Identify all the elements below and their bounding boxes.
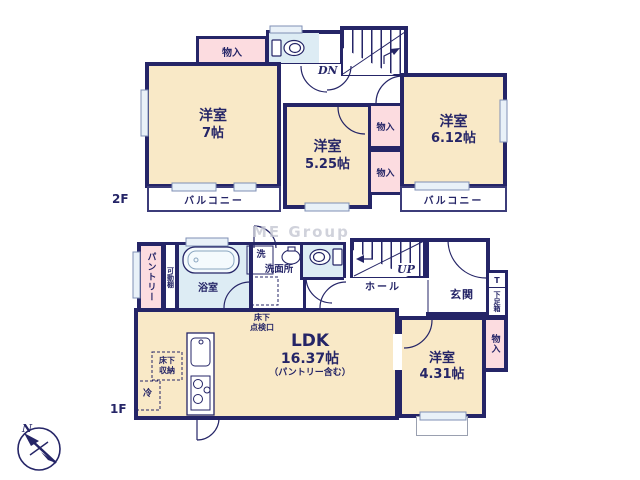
closet-2f-top-label: 物入 [222, 44, 242, 59]
hall-1f-label: ホール [352, 282, 414, 294]
bathroom-label: 浴室 [198, 283, 218, 295]
balcony-west: バルコニー [147, 186, 281, 212]
room-2f-east: 洋室 6.12帖 [400, 73, 507, 188]
shoe-box-t-label: T [494, 276, 499, 285]
room-2f-east-size: 6.12帖 [431, 131, 476, 147]
ldk-note: （パントリー含む） [245, 368, 375, 379]
ldk-label: LDK 16.37帖 （パントリー含む） [245, 331, 375, 379]
closet-1f-east-label: 物入 [489, 334, 502, 354]
room-2f-west: 洋室 7帖 [145, 62, 281, 188]
ldk-name: LDK [245, 331, 375, 351]
movable-shelf-label: 可動棚 [166, 267, 176, 288]
closet-2f-upper: 物入 [368, 103, 403, 149]
room-2f-west-size: 7帖 [202, 126, 224, 142]
pantry-label: パントリー [145, 252, 158, 302]
underfloor-hatch-label: 床下 点検口 [240, 313, 284, 332]
room-2f-center-name: 洋室 [314, 139, 342, 157]
room-2f-west-name: 洋室 [199, 108, 227, 126]
shoe-box-label: 下足箱 [492, 291, 502, 312]
compass-north-label: N [22, 422, 32, 435]
entrance-label: 玄関 [450, 288, 474, 301]
washroom-label: 洗面所 [254, 264, 304, 275]
underfloor-storage-label: 床下 収納 [152, 356, 182, 375]
bathroom [176, 242, 252, 312]
balcony-west-label: バルコニー [184, 192, 244, 207]
toilet-2f [266, 30, 322, 66]
floor-1-label: 1F [110, 402, 127, 416]
room-2f-center: 洋室 5.25帖 [283, 103, 372, 209]
closet-2f-upper-label: 物入 [376, 120, 394, 133]
balcony-east-label: バルコニー [424, 192, 484, 207]
floor-2-label: 2F [112, 192, 129, 206]
watermark: ME Group [252, 223, 350, 241]
laundry-label: 洗 [249, 250, 273, 261]
entrance-porch [426, 238, 490, 280]
closet-2f-lower: 物入 [368, 149, 403, 195]
room-2f-east-name: 洋室 [440, 114, 468, 132]
room-2f-center-size: 5.25帖 [305, 157, 350, 173]
ldk-size: 16.37帖 [245, 351, 375, 368]
closet-2f-lower-label: 物入 [376, 166, 394, 179]
pantry: パントリー [137, 242, 165, 312]
stair-landing-2f [340, 76, 408, 105]
room-1f-south-name: 洋室 [429, 351, 455, 367]
stairs-up-label: UP [396, 263, 416, 276]
terrace [416, 416, 468, 436]
stairs-down-label: DN [318, 64, 338, 77]
balcony-east: バルコニー [400, 186, 507, 212]
room-1f-south: 洋室 4.31帖 [398, 316, 486, 418]
toilet-1f [300, 242, 346, 280]
room-1f-south-size: 4.31帖 [419, 367, 464, 383]
fridge-label: 冷 [135, 389, 160, 400]
floor-plan: 物入 DN 洋室 7帖 洋室 5.25帖 物入 物入 洋室 6.12帖 バルコニ… [0, 0, 640, 480]
stairs-2f [340, 26, 408, 78]
shoe-box: T 下足箱 [486, 270, 508, 318]
